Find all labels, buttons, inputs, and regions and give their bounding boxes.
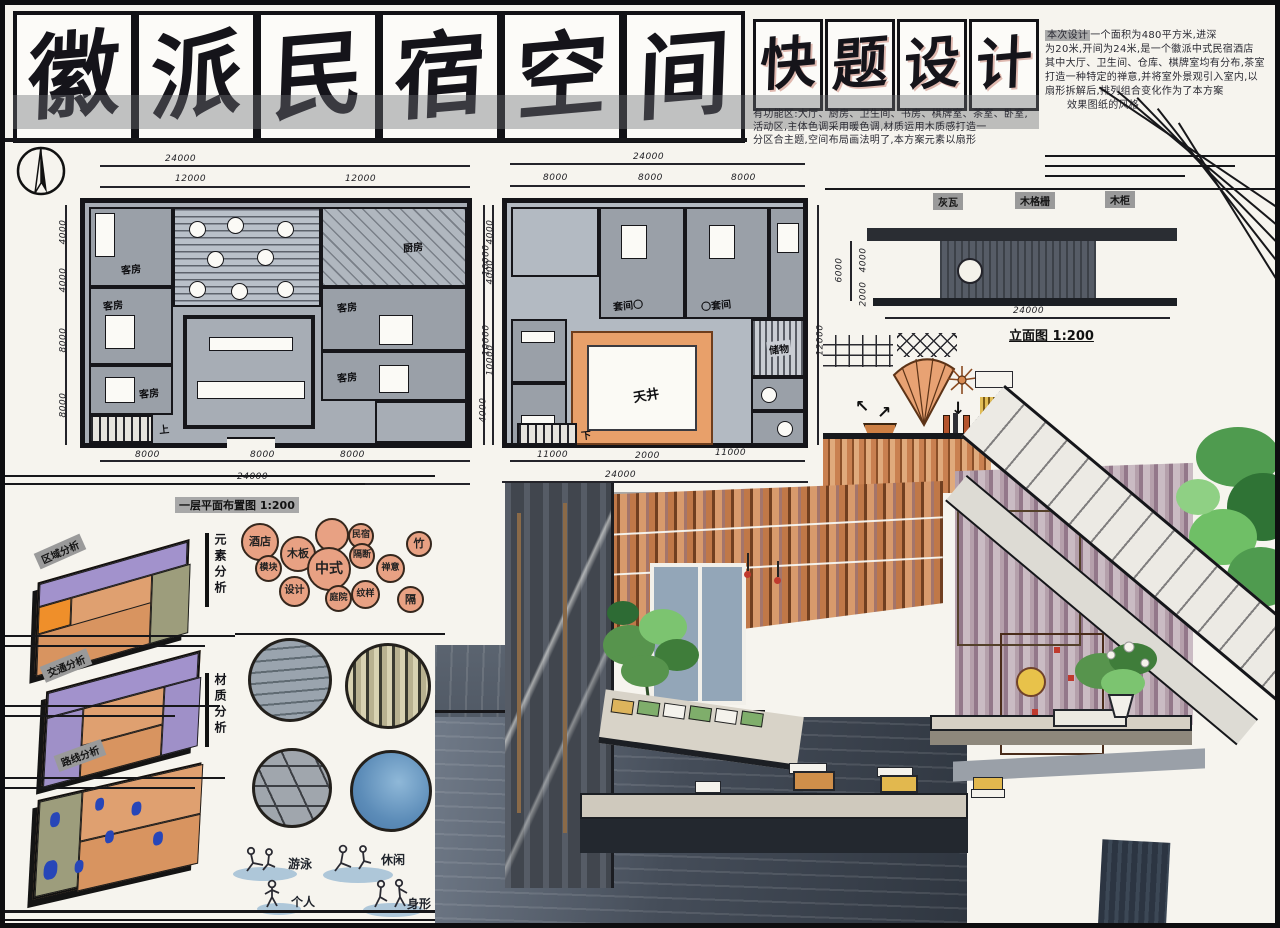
room-label: 客房 [120, 260, 141, 277]
dim-line [100, 186, 470, 188]
elevation-tag: 木柜 [1105, 191, 1135, 208]
cushion [663, 703, 687, 720]
north-compass-icon [15, 145, 67, 197]
dim-value: 8000 [58, 328, 68, 353]
dim-value: 24000 [605, 470, 636, 480]
dim-value: 8000 [731, 173, 756, 183]
design-board: 徽 派 民 宿 空 间 快 题 设 计 有功能区:大厅、厨房、卫生间、书房、棋牌… [0, 0, 1280, 928]
room-label: 储物 [766, 340, 791, 357]
cushion [714, 708, 738, 725]
dim-value: 24000 [165, 154, 196, 164]
floor2-stairs [517, 423, 577, 445]
dim-line [885, 317, 1170, 319]
lattice-x-sketch [897, 333, 957, 357]
elevation-lattice-right [1096, 241, 1173, 298]
element-analysis-title: 元素分析 [205, 533, 229, 607]
bed [521, 331, 555, 343]
subtitle-char: 设 [903, 34, 961, 95]
box-sketch [975, 371, 1013, 388]
round-table [777, 421, 793, 437]
guide-line [5, 483, 365, 485]
bubble: 禅意 [376, 554, 405, 583]
dim-value: 24000 [237, 472, 268, 482]
skywell-opening: 天井 [587, 345, 697, 431]
book-white [971, 789, 1005, 798]
cushion [740, 711, 764, 728]
floor2-storage: 储物 [751, 319, 805, 377]
dim-value: 4000 [478, 398, 488, 423]
bubble: 竹 [406, 531, 432, 557]
red-lantern [744, 571, 751, 578]
bed [105, 377, 135, 403]
dim-value: 12000 [345, 174, 376, 184]
elevation-tag: 木格栅 [1015, 192, 1055, 209]
notes-line: 有功能区:大厅、厨房、卫生间、书房、棋牌室、茶室、卧室, [753, 108, 1045, 121]
tea-table-upper-side [930, 731, 1192, 745]
dim-line [850, 241, 852, 301]
material-swatch-stone [248, 638, 332, 722]
arrow-icon: ↗ [877, 403, 891, 423]
room-label: 厨房 [402, 238, 423, 255]
stair-sketch-line [1178, 122, 1280, 301]
notes-line-first: 本次设计一个面积为480平方米,进深 [1045, 29, 1280, 43]
dim-line [510, 185, 805, 187]
dim-value: 11000 [537, 450, 568, 460]
bubble: 隔断 [349, 543, 375, 569]
guide-line [5, 645, 205, 647]
subtitle-char: 题 [831, 34, 889, 95]
guide-line [5, 910, 455, 913]
floor1-guest-room: 客房 [89, 287, 173, 365]
dim-value: 8000 [638, 173, 663, 183]
room-label: 天井 [632, 383, 661, 406]
floor2-toilets [511, 207, 599, 277]
plate-cell-olive [35, 792, 83, 897]
bubble: 纹样 [351, 580, 380, 609]
dining-table [227, 217, 244, 234]
floor1-guest-room: 客房 [89, 207, 173, 287]
floor2-suite: 〇套间 [685, 207, 769, 319]
floor2-tea-room [751, 411, 805, 445]
dining-table [189, 281, 206, 298]
dim-value: 8000 [58, 393, 68, 418]
design-notes-right: 本次设计一个面积为480平方米,进深 为20米,开间为24米,是一个徽派中式民宿… [1045, 29, 1280, 113]
dim-value: 2000 [858, 282, 868, 307]
figure-label: 个人 [291, 893, 315, 910]
cushion [688, 705, 712, 722]
figure-label: 休闲 [381, 851, 405, 868]
floor2-bedroom [769, 207, 805, 319]
room-label: 〇套间 [700, 295, 731, 313]
subtitle-char: 快 [759, 34, 817, 95]
lamp-cord [777, 561, 779, 577]
material-swatch-glass [350, 750, 432, 832]
dim-value: 12000 [175, 174, 206, 184]
courtyard-table [209, 337, 293, 351]
notes-line: 分区合主题,空间布局画法明了,本方案元素以扇形 [753, 134, 1045, 147]
dim-value: 4000 [58, 220, 68, 245]
guide-line [5, 475, 435, 477]
floor1-kitchen: 厨房 [321, 207, 467, 287]
title-underline [5, 138, 747, 142]
guide-line [235, 633, 445, 635]
notes-tag: 本次设计 [1045, 30, 1090, 41]
flower-arrangement [1071, 633, 1167, 721]
plate-cell-olive [150, 564, 191, 644]
bubble: 模块 [255, 555, 282, 582]
cushion [637, 700, 661, 717]
dim-value: 10000 [486, 344, 496, 375]
dining-table [277, 221, 294, 238]
bed [95, 213, 115, 257]
bubble: 设计 [279, 576, 310, 607]
figure-sketch [241, 845, 281, 879]
arrow-icon: ↖ [855, 397, 869, 417]
wood-tray [793, 771, 835, 791]
tea-platform-base [580, 819, 968, 853]
subtitle-char: 计 [975, 34, 1033, 95]
figure-label: 游泳 [288, 855, 312, 872]
shelf-grid-sketch [823, 335, 893, 367]
elevation-base-band [873, 298, 1177, 306]
dim-value: 4000 [485, 220, 495, 245]
book-white [695, 781, 721, 793]
guide-line [5, 787, 195, 789]
floor2-room [511, 319, 567, 383]
elevation-tag: 灰瓦 [933, 193, 963, 210]
room-label: 客房 [336, 368, 357, 385]
notes-line: 活动区,主体色调采用暖色调,材质运用木质感打造一 [753, 121, 1045, 134]
notes-line: 效果图纸的风格 [1045, 99, 1280, 113]
guide-line [5, 635, 235, 637]
floor1-guest-room: 客房 [321, 287, 467, 351]
bubble: 庭院 [325, 585, 352, 612]
elevation-title: 立面图 1:200 [1005, 325, 1098, 344]
floor1-title: 一层平面布置图 1:200 [175, 497, 299, 513]
stair-label: 下 [580, 427, 592, 443]
round-table [761, 387, 777, 403]
dim-value: 8000 [135, 450, 160, 460]
lamp-cord [747, 553, 749, 571]
floor1-plan: 客房 客房 客房 上 厨房 客房 客房 [80, 198, 472, 448]
guide-line [5, 715, 175, 717]
room-label: 客房 [102, 296, 123, 313]
floor1-entrance [227, 437, 275, 449]
dim-value: 4000 [485, 260, 495, 285]
wood-strip [563, 503, 567, 833]
figure-sketch [331, 843, 375, 879]
cushion [611, 698, 635, 715]
floor2-plan: 套间〇 〇套间 储物 天井 [502, 198, 808, 448]
room-label: 客房 [336, 298, 357, 315]
floor2-suite: 套间〇 [599, 207, 685, 319]
dim-line [100, 165, 470, 167]
room-label: 客房 [138, 384, 159, 401]
floor1-guest-room: 客房 [89, 365, 173, 415]
floor2-skywell: 天井 [571, 331, 713, 445]
dim-value: 24000 [633, 152, 664, 162]
stair-label: 上 [158, 421, 170, 437]
dim-value: 24000 [1013, 306, 1044, 316]
dim-value: 6000 [834, 258, 844, 283]
elevation-moon-window [957, 258, 983, 284]
guide-line [5, 777, 225, 779]
tea-platform [580, 793, 968, 819]
dim-value: 8000 [250, 450, 275, 460]
room-label: 套间〇 [612, 295, 643, 313]
elevation-lattice-left [880, 241, 940, 298]
bed [777, 223, 799, 253]
notes-line: 其中大厅、卫生间、仓库、棋牌室均有分布,茶室 [1045, 57, 1280, 71]
guide-line [5, 705, 220, 707]
material-swatch-tile [252, 748, 332, 828]
dining-table [231, 283, 248, 300]
material-analysis-title: 材质分析 [205, 673, 229, 747]
floor1-guest-room: 客房 [321, 351, 467, 401]
bed [709, 225, 735, 259]
material-swatch-bamboo [345, 643, 431, 729]
bed [105, 315, 135, 349]
notes-line: 打造一种特定的禅意,并将室外景观引入室内,以 [1045, 71, 1280, 85]
dining-table [277, 281, 294, 298]
ink-shadow-strokes [1098, 839, 1171, 928]
red-ornament [1054, 647, 1060, 653]
dining-table [189, 221, 206, 238]
guide-line [5, 919, 435, 921]
wood-tray [880, 775, 918, 793]
bubble: 隔 [397, 586, 424, 613]
dim-value: 4000 [858, 248, 868, 273]
dim-value: 2000 [635, 451, 660, 461]
notes-line: 为20米,开间为24米,是一个徽派中式民宿酒店 [1045, 43, 1280, 57]
guide-line [1045, 155, 1280, 157]
dim-value: 8000 [543, 173, 568, 183]
dim-line [100, 460, 470, 462]
dim-line [510, 163, 805, 165]
dining-table [207, 251, 224, 268]
bed [621, 225, 647, 259]
notes-text: 一个面积为480平方米,进深 [1090, 30, 1216, 41]
dim-value: 8000 [340, 450, 365, 460]
dim-value: 4000 [58, 268, 68, 293]
floor1-courtyard [183, 315, 315, 429]
dim-value: 11000 [715, 448, 746, 458]
floor2-tea-room [751, 377, 805, 411]
courtyard-table [197, 381, 305, 399]
red-lantern [774, 577, 781, 584]
floor1-toilets [375, 401, 467, 443]
flower-sketch [947, 365, 977, 395]
bed [379, 365, 409, 393]
bubble: 中式 [307, 547, 351, 591]
plate-tag: 区域分析 [34, 534, 87, 570]
round-niche [1016, 667, 1046, 697]
notes-line: 扇形拆解后,排列组合变化作为了本方案 [1045, 85, 1280, 99]
guide-line [1045, 175, 1185, 177]
design-notes-mid: 有功能区:大厅、厨房、卫生间、书房、棋牌室、茶室、卧室, 活动区,主体色调采用暖… [753, 108, 1045, 147]
wood-strip [517, 513, 521, 813]
floor1-stairs [89, 415, 153, 443]
guide-line [825, 188, 1280, 190]
elevation-roof-band [867, 228, 1177, 241]
bed [379, 315, 413, 345]
dining-table [257, 249, 274, 266]
